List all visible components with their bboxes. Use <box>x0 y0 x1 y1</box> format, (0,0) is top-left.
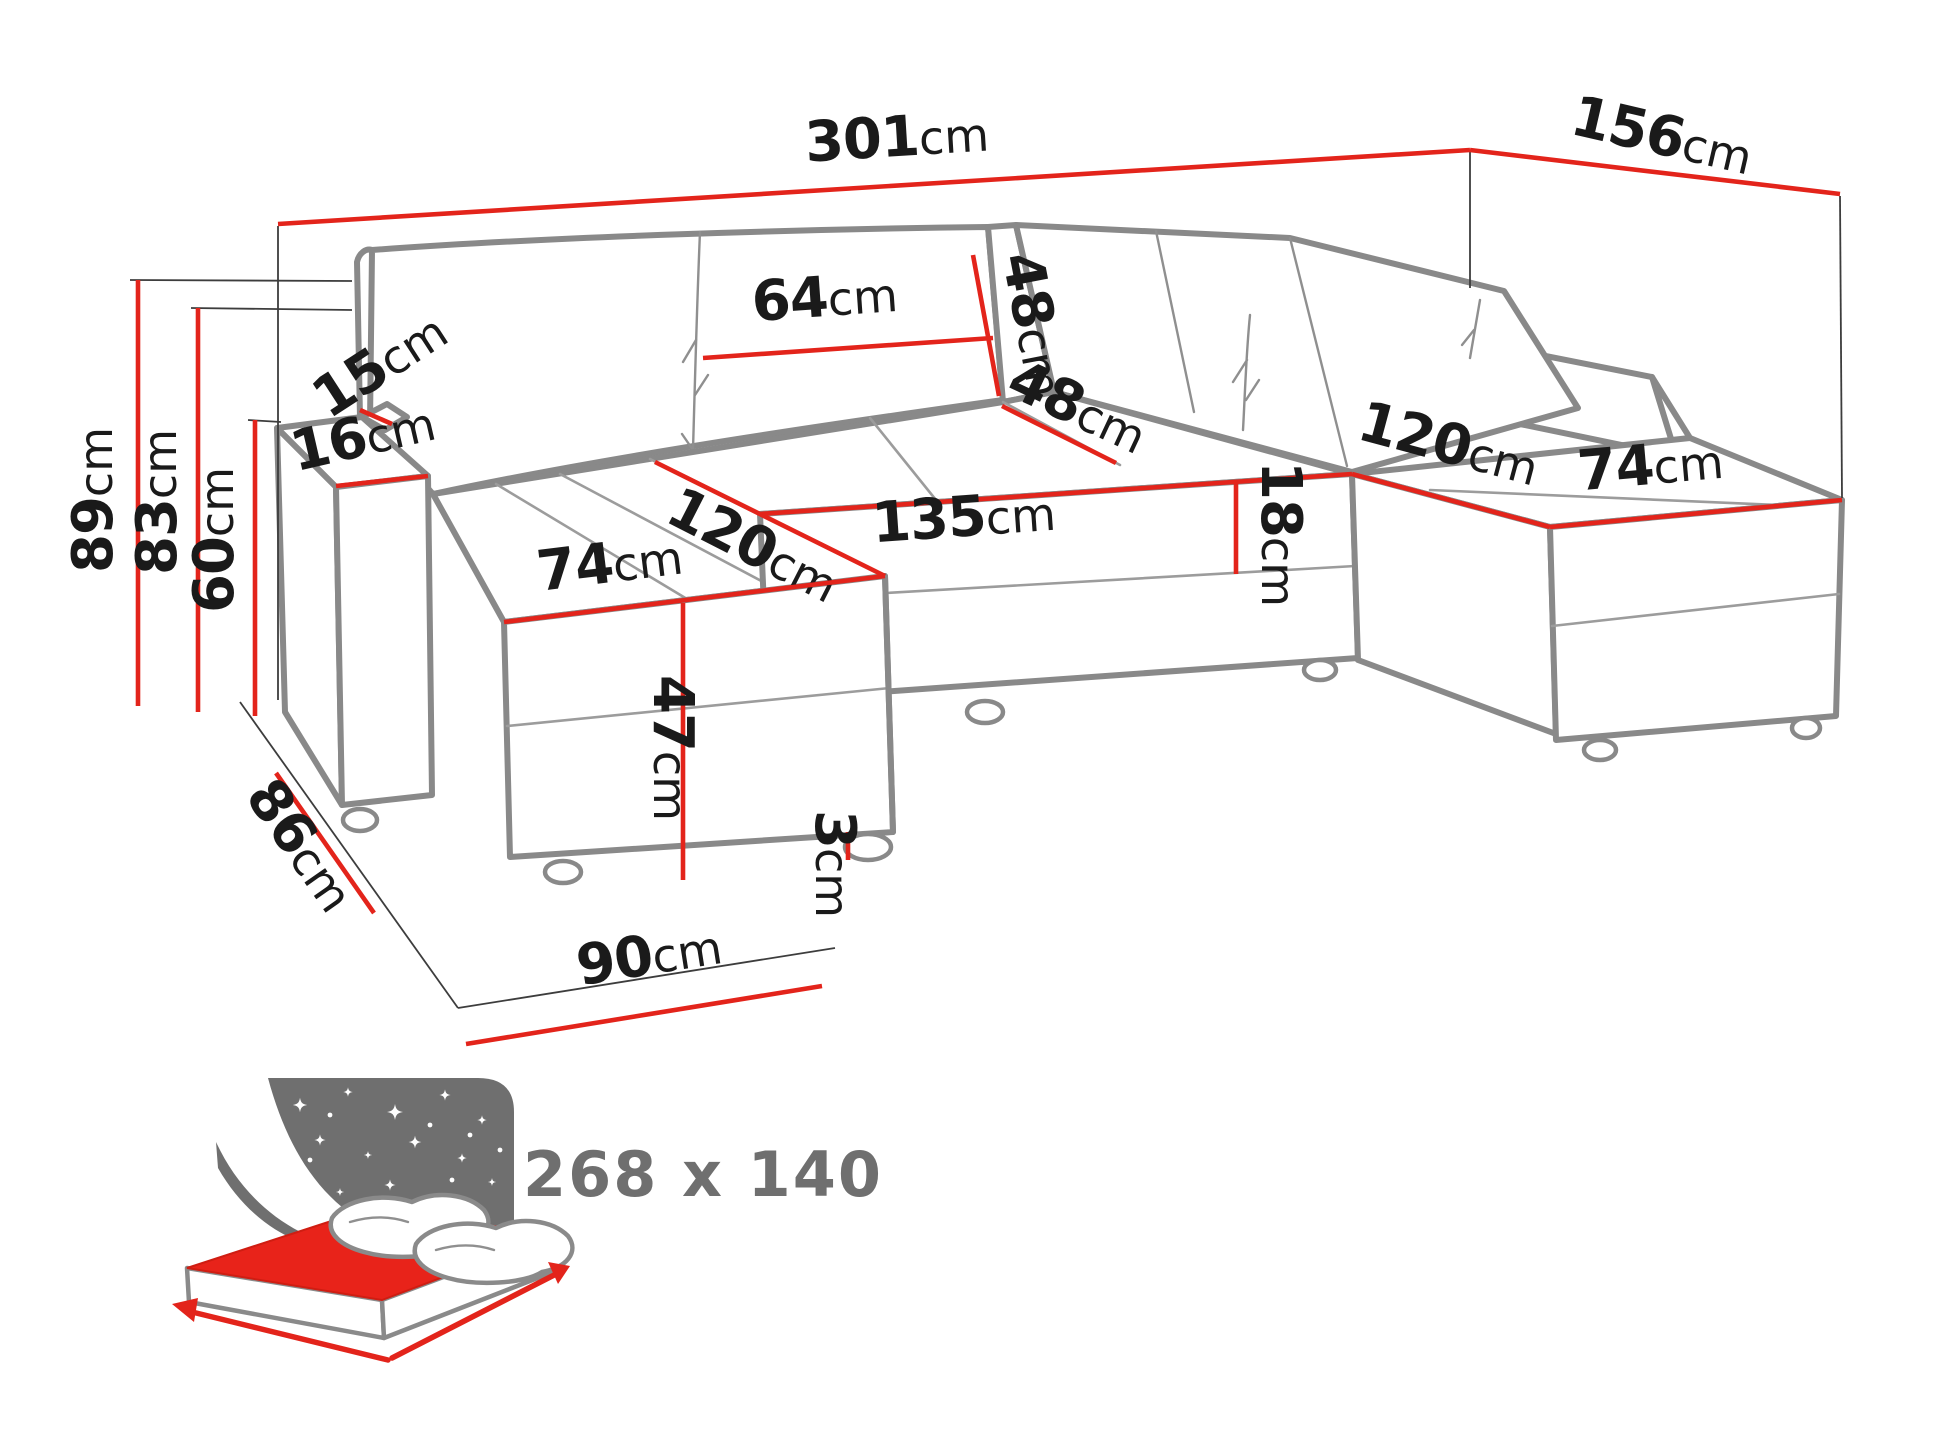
dim-label: 89cm <box>61 427 126 573</box>
dimension-height-armrest: 60cm <box>182 420 255 716</box>
dim-line <box>466 986 822 1044</box>
dim-label: 83cm <box>125 429 190 575</box>
diagram-svg: 301cm 156cm 89cm 83cm 60cm 15cm 16cm 64c… <box>0 0 1940 1456</box>
dimension-depth-overall: 156cm <box>1470 84 1840 194</box>
dim-label: 18cm <box>1248 461 1313 607</box>
dim-label: 60cm <box>182 467 247 613</box>
dim-label: 47cm <box>640 675 705 821</box>
dimension-width-overall: 301cm <box>278 99 1470 224</box>
dimension-height-overall: 89cm <box>61 280 138 706</box>
dimension-leg-height: 3cm <box>802 810 867 918</box>
sofa-dimension-diagram: 301cm 156cm 89cm 83cm 60cm 15cm 16cm 64c… <box>0 0 1940 1456</box>
dim-label: 90cm <box>572 912 726 999</box>
sleeping-area-size: 268 x 140 <box>523 1138 883 1211</box>
sleeping-area-icon: 268 x 140 <box>172 1078 883 1360</box>
dim-label: 301cm <box>803 99 991 175</box>
dim-label: 3cm <box>802 810 867 918</box>
dimension-chaise-footprint: 90cm <box>466 912 822 1044</box>
